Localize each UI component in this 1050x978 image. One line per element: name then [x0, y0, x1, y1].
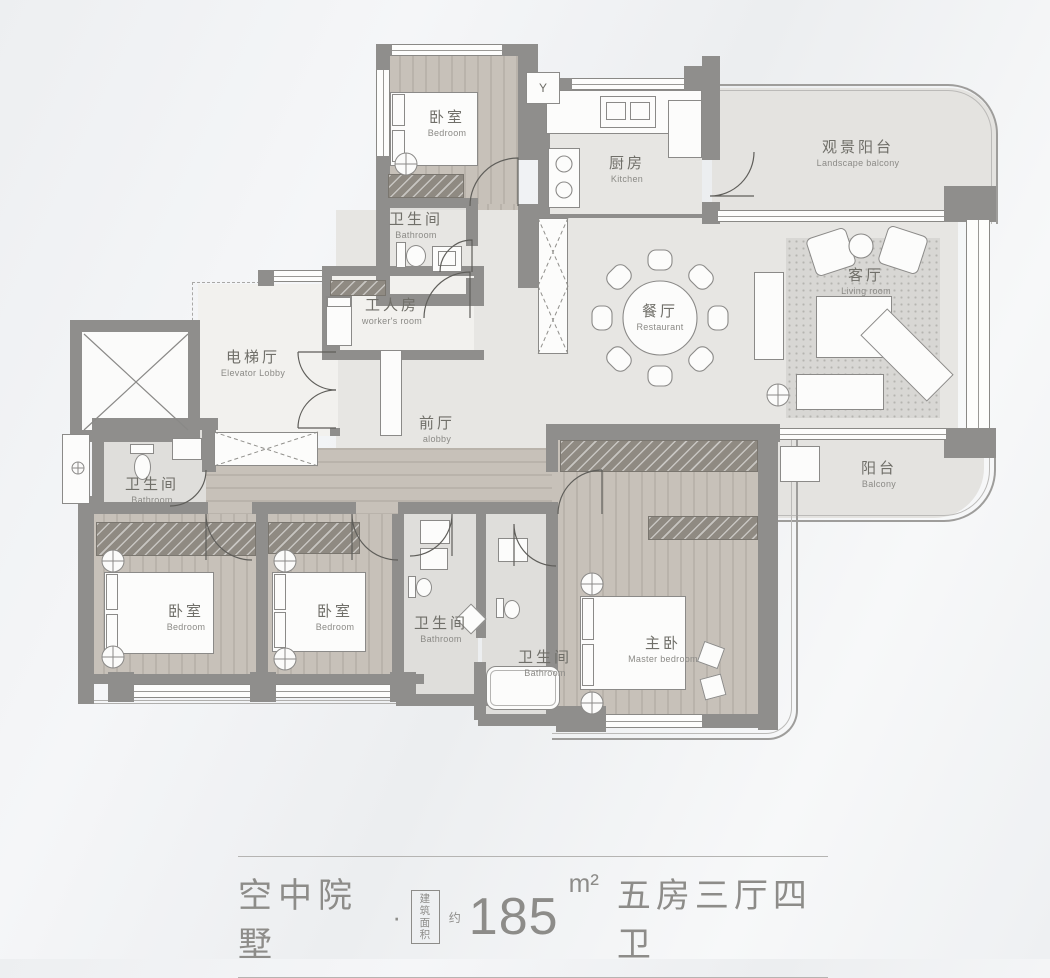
sink-basin: [606, 102, 626, 120]
floor-plan: 卧室 Bedroom 卫生间 Bathroom 厨房 Kitchen 观景阳台 …: [0, 0, 1050, 959]
wall: [256, 514, 268, 686]
toilet-tank: [496, 598, 504, 618]
wall: [474, 266, 484, 306]
window: [780, 428, 946, 440]
room-label-bathroom-2: 卫生间 Bathroom: [518, 646, 572, 678]
wall: [92, 418, 218, 430]
hall-cabinet: [380, 350, 402, 436]
wardrobe: [560, 440, 758, 472]
window: [966, 220, 990, 428]
window: [572, 78, 684, 90]
pillow: [582, 644, 594, 686]
window: [392, 44, 502, 56]
approx-label: 约: [449, 909, 461, 926]
stove: [548, 148, 580, 208]
shoe-cabinet: [214, 432, 318, 466]
toilet-tank: [396, 242, 406, 268]
coffee-table: [796, 374, 884, 410]
wall: [78, 496, 94, 704]
pillow: [274, 612, 286, 648]
room-label-landscape-balcony: 观景阳台 Landscape balcony: [817, 136, 900, 168]
wardrobe: [96, 522, 256, 556]
vanity: [420, 520, 450, 544]
vanity: [172, 438, 202, 460]
room-label-bedroom-left: 卧室 Bedroom: [167, 600, 206, 632]
wall: [424, 502, 558, 514]
pillow: [392, 94, 405, 126]
room-label-elevator-lobby: 电梯厅 Elevator Lobby: [221, 346, 285, 378]
wall: [376, 198, 478, 208]
pillow: [274, 574, 286, 610]
window: [606, 714, 702, 728]
room-label-dining-room: 餐厅 Restaurant: [636, 300, 683, 332]
room-label-living-room: 客厅 Living room: [841, 264, 891, 296]
window: [274, 270, 322, 282]
room-label-kitchen: 厨房 Kitchen: [609, 152, 645, 184]
room-label-master-bedroom: 主卧 Master bedroom: [628, 632, 698, 664]
wall: [466, 198, 478, 246]
dashed-boundary: [192, 282, 260, 284]
wall: [546, 424, 558, 472]
wall: [258, 270, 274, 286]
room-label-bathroom-top: 卫生间 Bathroom: [389, 208, 443, 240]
wall: [556, 424, 764, 440]
wall: [758, 424, 778, 730]
room-label-bathroom-1: 卫生间 Bathroom: [414, 612, 468, 644]
wall: [944, 428, 996, 458]
window: [276, 684, 390, 698]
vanity: [420, 548, 448, 570]
flue-marker: Y: [539, 81, 547, 95]
tv-console: [754, 272, 784, 360]
room-label-bedroom-mid: 卧室 Bedroom: [316, 600, 355, 632]
wall: [330, 428, 340, 436]
wall: [944, 186, 996, 222]
pillow: [106, 614, 118, 650]
toilet-bowl: [406, 245, 426, 267]
wall: [92, 418, 104, 504]
pillow: [106, 574, 118, 610]
room-label-balcony: 阳台 Balcony: [861, 457, 897, 489]
toilet-tank: [408, 576, 416, 598]
wall: [108, 672, 134, 702]
wall: [322, 350, 484, 360]
kitchen-shelf: [668, 100, 702, 158]
room-label-bedroom-top: 卧室 Bedroom: [428, 106, 467, 138]
toilet-bowl: [504, 600, 520, 619]
partition-cabinet: [538, 218, 568, 354]
wardrobe: [388, 174, 464, 198]
sink-basin: [438, 251, 456, 266]
pillow: [392, 130, 405, 162]
wardrobe: [648, 516, 758, 540]
wall: [392, 514, 404, 686]
wall: [556, 706, 606, 732]
window: [376, 70, 390, 156]
area-value: 185: [469, 894, 559, 941]
wall: [546, 214, 718, 218]
window: [134, 684, 250, 698]
pillow: [582, 598, 594, 640]
shaft-box: [62, 434, 90, 504]
wall: [478, 714, 562, 726]
wall: [398, 502, 426, 514]
toilet-bowl: [416, 578, 432, 597]
wall: [474, 662, 486, 720]
caption-separator: ·: [392, 902, 401, 933]
window: [718, 210, 944, 222]
room-label-front-hall: 前厅 alobby: [419, 412, 455, 444]
wall: [250, 672, 276, 702]
ac-unit: [780, 446, 820, 482]
wall: [252, 502, 356, 514]
room-label-bathroom-left: 卫生间 Bathroom: [125, 473, 179, 505]
wardrobe: [268, 522, 360, 554]
vanity: [498, 538, 528, 562]
area-label-box: 建筑 面积: [411, 890, 440, 944]
area-unit: m²: [569, 868, 599, 899]
room-label-workers-room: 工人房 worker's room: [362, 294, 422, 326]
layout-label: 五房三厅四卫: [617, 868, 828, 966]
wall: [684, 66, 720, 90]
toilet-tank: [130, 444, 154, 454]
pillow: [327, 297, 351, 307]
project-title: 空中院墅: [238, 868, 382, 966]
wall: [518, 204, 538, 288]
sink-basin: [630, 102, 650, 120]
caption: 空中院墅 · 建筑 面积 约 185 m² 五房三厅四卫: [238, 856, 828, 978]
